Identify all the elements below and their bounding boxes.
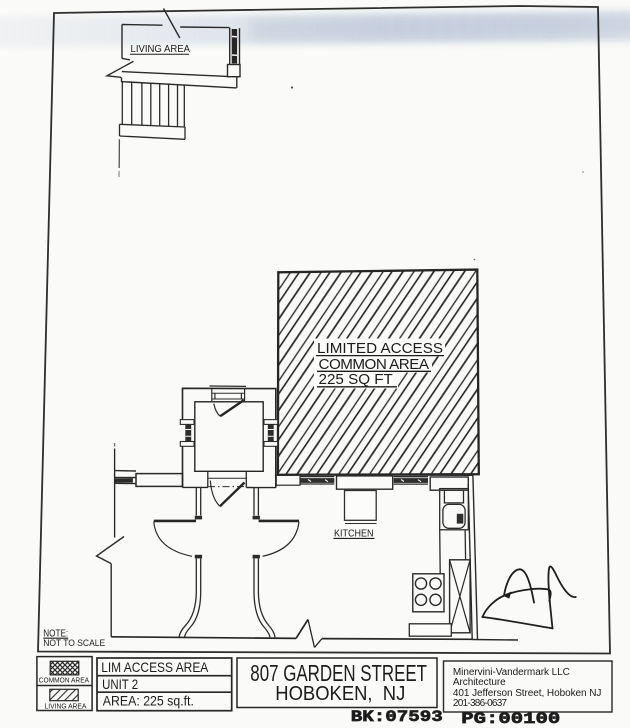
svg-text:LIVING AREA: LIVING AREA [45, 702, 87, 711]
svg-text:BK:07593: BK:07593 [351, 708, 443, 726]
svg-text:PG:00100: PG:00100 [461, 710, 560, 728]
svg-text:UNIT 2: UNIT 2 [102, 677, 138, 692]
svg-text:HOBOKEN, NJ: HOBOKEN, NJ [275, 682, 405, 705]
svg-text:201-386-0637: 201-386-0637 [453, 698, 508, 709]
svg-text:NOT TO SCALE: NOT TO SCALE [43, 638, 105, 648]
svg-text:COMMON AREA: COMMON AREA [39, 675, 89, 684]
svg-text:225 SQ FT: 225 SQ FT [319, 371, 393, 388]
svg-text:LIMITED ACCESS: LIMITED ACCESS [317, 340, 443, 357]
svg-text:LIVING AREA: LIVING AREA [131, 44, 191, 55]
svg-text:LIM ACCESS AREA: LIM ACCESS AREA [101, 660, 209, 675]
svg-text:AREA: 225 sq.ft.: AREA: 225 sq.ft. [103, 694, 194, 709]
svg-text:Architecture: Architecture [453, 677, 506, 688]
